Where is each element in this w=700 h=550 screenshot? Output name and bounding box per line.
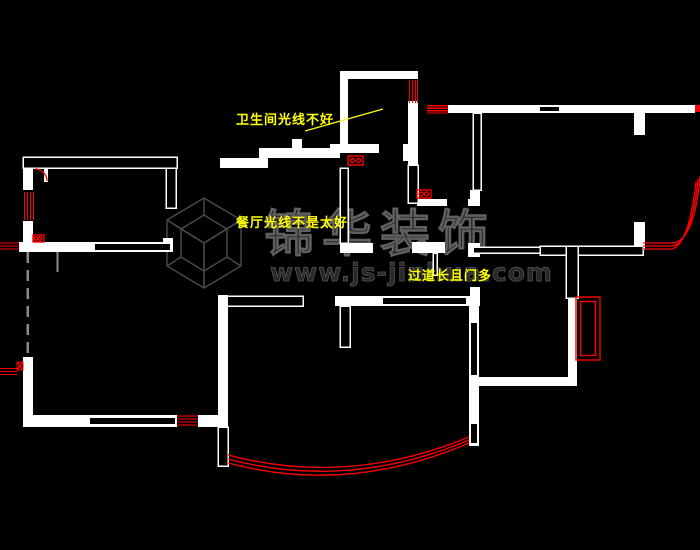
window-top-horizontal: [427, 106, 448, 113]
dashed-opening-lines: [28, 252, 58, 357]
wall-segment: [259, 148, 340, 158]
wall-segment: [330, 144, 379, 153]
wall-segment: [335, 296, 350, 306]
jinhua-cube-logo-icon: [167, 198, 241, 288]
bay-window-arc-top-right: [643, 176, 700, 249]
window-corner-mark: [695, 105, 700, 112]
door-jamb: [403, 144, 410, 161]
wall-cavity: [471, 424, 477, 443]
bathroom-annotation: 卫生间光线不好: [236, 112, 334, 128]
window-left-edge-upper: [0, 243, 19, 249]
wall-segment: [220, 158, 268, 168]
balcony-bay-window-arc: [228, 437, 469, 475]
wall-segment: [470, 190, 480, 203]
watermark-brand: 锦华装饰: [264, 205, 496, 263]
wall-segment: [340, 71, 418, 79]
wall-cavity: [90, 418, 175, 424]
bay-window-rect: [576, 297, 600, 360]
wall-segment: [340, 71, 348, 149]
wall-segment: [340, 306, 350, 347]
corridor-annotation: 过道长且门多: [408, 268, 492, 284]
wall-segment: [166, 168, 176, 208]
wall-segment: [23, 221, 33, 242]
wall-segment: [198, 415, 218, 427]
wall-segment: [218, 427, 228, 466]
double-door-symbol: [348, 156, 363, 165]
wall-segment: [479, 377, 577, 386]
wall-segment: [448, 105, 695, 113]
wall-segment: [340, 168, 348, 243]
double-door-symbol: [417, 190, 431, 198]
double-door-symbol: [33, 235, 44, 242]
wall-segment: [163, 238, 173, 242]
wall-cavity: [95, 244, 170, 250]
window-left-edge-lower: [0, 362, 23, 375]
wall-segment: [340, 243, 373, 253]
wall-segment: [540, 246, 643, 255]
wall-segment: [227, 296, 303, 306]
window-bottom-left-room: [177, 416, 198, 425]
wall-cavity: [471, 323, 477, 375]
wall-segment: [470, 287, 480, 306]
window-bathroom-vertical: [410, 80, 418, 103]
wall-segment: [23, 168, 33, 190]
wall-cavity: [383, 298, 466, 304]
walls-hollow: [23, 113, 643, 466]
wall-column: [292, 139, 302, 149]
floorplan-canvas: 锦华装饰 www.js-jinhua.com: [0, 0, 700, 550]
wall-segment: [218, 295, 228, 427]
wall-column: [634, 113, 645, 135]
wall-segment: [473, 247, 540, 253]
wall-segment: [473, 113, 481, 190]
wall-cavity: [540, 107, 559, 111]
dining-annotation: 餐厅光线不是太好: [235, 215, 348, 231]
wall-segment: [412, 242, 445, 253]
wall-segment: [23, 157, 177, 168]
wall-segment: [417, 199, 447, 206]
window-left-room: [25, 192, 34, 220]
wall-segment: [566, 246, 578, 298]
